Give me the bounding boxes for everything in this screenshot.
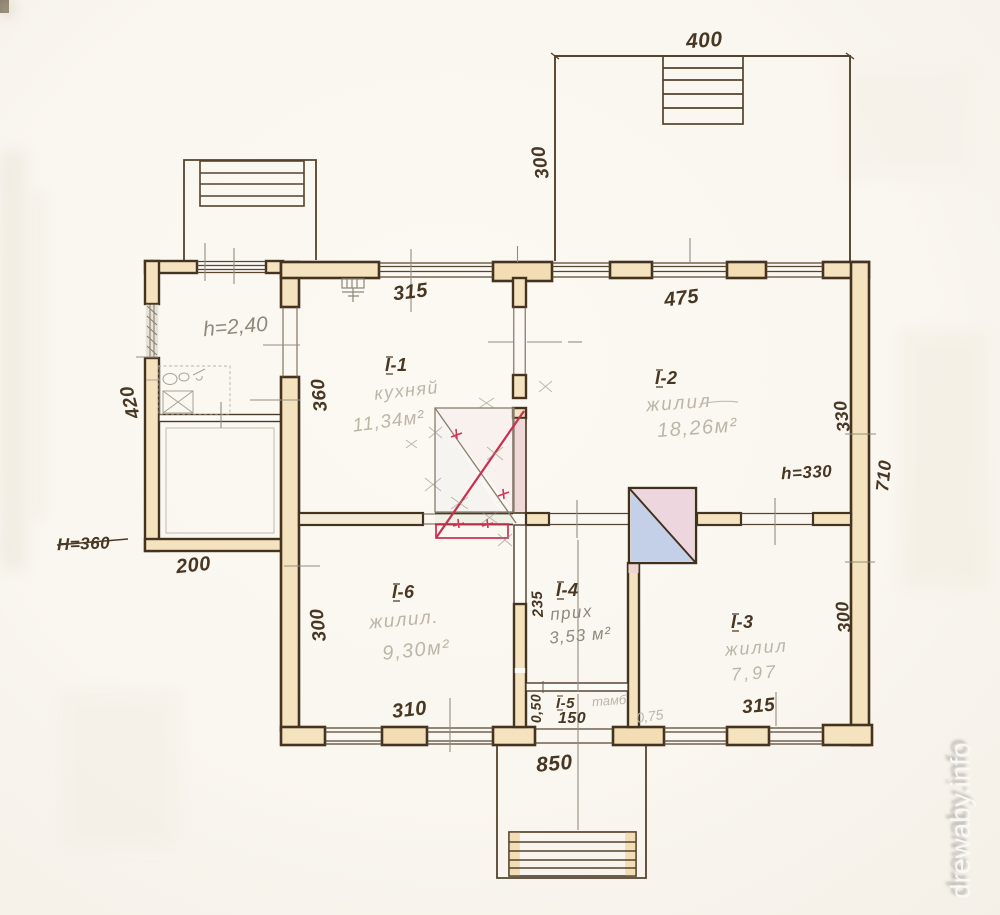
- svg-text:300: 300: [832, 600, 855, 633]
- svg-text:7,97: 7,97: [730, 661, 778, 684]
- svg-text:850: 850: [535, 751, 573, 777]
- svg-text:315: 315: [392, 279, 430, 305]
- svg-text:h=330: h=330: [781, 462, 833, 484]
- svg-text:200: 200: [174, 553, 212, 579]
- svg-text:I-3: I-3: [731, 612, 754, 632]
- svg-text:drewaby.info: drewaby.info: [945, 742, 976, 899]
- svg-text:I-4: I-4: [556, 580, 579, 600]
- svg-text:прих: прих: [549, 601, 593, 624]
- svg-text:тамб: тамб: [592, 692, 628, 709]
- svg-text:I-2: I-2: [655, 368, 678, 388]
- svg-text:360: 360: [308, 377, 332, 412]
- svg-text:315: 315: [741, 694, 776, 718]
- svg-text:235: 235: [529, 590, 547, 619]
- svg-text:710: 710: [872, 459, 895, 492]
- svg-text:475: 475: [662, 285, 701, 311]
- svg-text:I-6: I-6: [392, 582, 415, 602]
- svg-text:0,50: 0,50: [527, 694, 544, 724]
- svg-text:310: 310: [391, 697, 428, 723]
- svg-text:400: 400: [684, 28, 723, 54]
- svg-text:I-1: I-1: [385, 355, 408, 375]
- svg-text:300: 300: [307, 607, 331, 642]
- svg-text:150: 150: [558, 710, 586, 727]
